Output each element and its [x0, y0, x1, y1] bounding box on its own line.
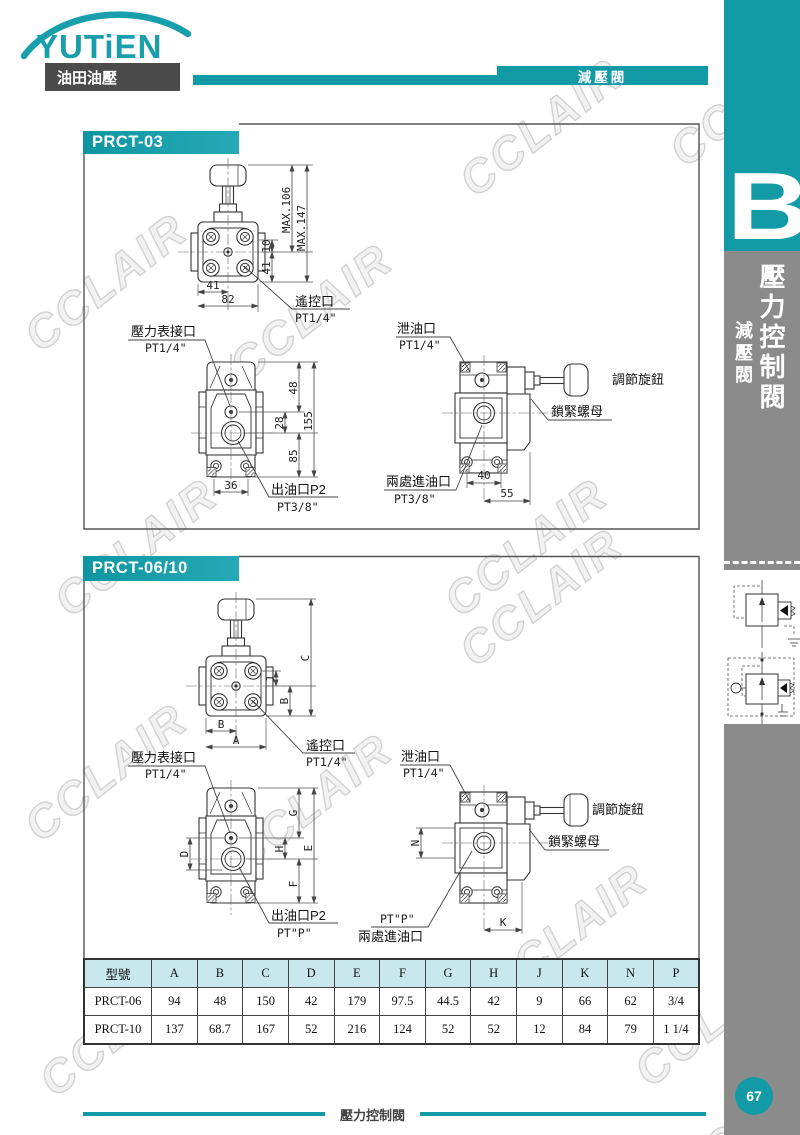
- col-header: F: [380, 959, 426, 988]
- prct0610-side-view: 泄油口 PT1/4" 調節旋鈕 鎖緊螺母 N K PT"P" 兩處進油口: [358, 749, 644, 944]
- dim-label: C: [299, 655, 312, 662]
- cell: 52: [425, 1016, 471, 1045]
- dim-label: D: [178, 851, 191, 858]
- cell: 52: [471, 1016, 517, 1045]
- table-header-row: 型號 A B C D E F G H J K N P: [84, 959, 699, 988]
- table-row: PRCT-10 137 68.7 167 52 216 124 52 52 12…: [84, 1016, 699, 1045]
- dim-label: B: [278, 697, 291, 704]
- col-header: D: [288, 959, 334, 988]
- prct03-top-view: 10 41 MAX.106 MAX.147 41 82 遙控口 PT1/4": [178, 158, 350, 325]
- port-size-label: PT1/4": [399, 338, 441, 352]
- port-label: 出油口P2: [271, 908, 326, 923]
- dim-label: F: [287, 881, 300, 888]
- port-size-label: PT"P": [380, 912, 415, 926]
- cell: 62: [608, 988, 654, 1016]
- footer-rule-left: [83, 1112, 325, 1116]
- prct03-side-view: 泄油口 PT1/4" 調節旋鈕 鎖緊螺母 兩處進油口 PT3/8" 40 55: [384, 321, 664, 506]
- cell: 68.7: [197, 1016, 243, 1045]
- dim-label: 28: [273, 416, 286, 429]
- cell: 1 1/4: [653, 1016, 699, 1045]
- dim-label: 55: [500, 487, 513, 500]
- col-header: J: [517, 959, 563, 988]
- knob-label: 調節旋鈕: [612, 372, 664, 387]
- dimension-table: 型號 A B C D E F G H J K N P PRCT-06 94 48…: [83, 958, 700, 1045]
- catalog-page: CCLAIR CCLAIR CCLAIR CCLAIR CCLAIR CCLAI…: [0, 0, 800, 1135]
- sidebar-section-letter: B: [727, 162, 800, 252]
- cell: 137: [152, 1016, 198, 1045]
- prct0610-top-view: J B C B A 遙控口 PT1/4": [186, 592, 355, 769]
- cell: 52: [288, 1016, 334, 1045]
- dim-label: N: [409, 840, 422, 847]
- dim-label: E: [302, 845, 315, 852]
- cell: 9: [517, 988, 563, 1016]
- nut-label: 鎖緊螺母: [551, 404, 603, 419]
- dim-label: 41: [260, 261, 273, 274]
- col-header: E: [334, 959, 380, 988]
- port-label: 壓力表接口: [131, 750, 196, 765]
- col-header: 型號: [84, 959, 152, 988]
- cell: 179: [334, 988, 380, 1016]
- cell: PRCT-06: [84, 988, 152, 1016]
- dim-label: 82: [221, 293, 234, 306]
- cell: 216: [334, 1016, 380, 1045]
- dim-label: 48: [287, 381, 300, 394]
- col-header: K: [562, 959, 608, 988]
- dim-label: 36: [224, 479, 237, 492]
- table-row: PRCT-06 94 48 150 42 179 97.5 44.5 42 9 …: [84, 988, 699, 1016]
- port-size-label: PT1/4": [145, 767, 187, 781]
- knob-label: 調節旋鈕: [592, 802, 644, 817]
- col-header: G: [425, 959, 471, 988]
- nut-label: 鎖緊螺母: [548, 834, 600, 849]
- section-title-prct03: PRCT-03: [83, 131, 239, 154]
- prct0610-front-view: D H G F E 壓力表接口 PT1/4" 出油口P2 PT"P": [128, 750, 338, 940]
- port-size-label: PT1/4": [403, 766, 445, 780]
- col-header: H: [471, 959, 517, 988]
- port-size-label: PT1/4": [306, 755, 348, 769]
- port-size-label: PT1/4": [295, 311, 337, 325]
- dim-label: 85: [287, 449, 300, 462]
- logo-swoosh-icon: [18, 4, 203, 66]
- port-label: 兩處進油口: [386, 474, 451, 489]
- cell: 44.5: [425, 988, 471, 1016]
- prct03-front-view: 28 48 85 155 36 壓力表接口 PT1/4" 出油口P2 PT3/8…: [128, 324, 338, 514]
- port-label: 遙控口: [295, 294, 334, 309]
- dim-label: J: [264, 676, 277, 683]
- col-header: A: [152, 959, 198, 988]
- cell: 150: [243, 988, 289, 1016]
- section-title-prct0610: PRCT-06/10: [83, 556, 239, 581]
- dim-label: MAX.106: [280, 187, 293, 233]
- col-header: P: [653, 959, 699, 988]
- cell: PRCT-10: [84, 1016, 152, 1045]
- dim-label: 40: [477, 469, 490, 482]
- cell: 79: [608, 1016, 654, 1045]
- cell: 42: [288, 988, 334, 1016]
- port-label: 壓力表接口: [131, 324, 196, 339]
- cell: 12: [517, 1016, 563, 1045]
- cell: 124: [380, 1016, 426, 1045]
- dim-label: A: [233, 734, 240, 747]
- cell: 66: [562, 988, 608, 1016]
- port-size-label: PT"P": [277, 926, 312, 940]
- dim-label: 41: [206, 279, 219, 292]
- footer-rule-right: [420, 1112, 706, 1116]
- dim-label: B: [218, 718, 225, 731]
- cell: 94: [152, 988, 198, 1016]
- col-header: B: [197, 959, 243, 988]
- port-label: 兩處進油口: [358, 929, 423, 944]
- col-header: C: [243, 959, 289, 988]
- port-size-label: PT3/8": [394, 492, 436, 506]
- cell: 84: [562, 1016, 608, 1045]
- port-label: 泄油口: [397, 321, 436, 336]
- cell: 3/4: [653, 988, 699, 1016]
- cell: 167: [243, 1016, 289, 1045]
- dim-label: H: [273, 846, 286, 853]
- footer-label: 壓力控制閥: [325, 1105, 420, 1124]
- cell: 97.5: [380, 988, 426, 1016]
- dim-label: 10: [260, 239, 273, 252]
- port-size-label: PT3/8": [277, 500, 319, 514]
- port-label: 出油口P2: [271, 482, 326, 497]
- port-size-label: PT1/4": [145, 341, 187, 355]
- cell: 48: [197, 988, 243, 1016]
- dim-label: MAX.147: [295, 205, 308, 251]
- port-label: 泄油口: [401, 749, 440, 764]
- cell: 42: [471, 988, 517, 1016]
- dim-label: G: [287, 810, 300, 817]
- col-header: N: [608, 959, 654, 988]
- dim-label: 155: [302, 411, 315, 431]
- dim-label: K: [500, 916, 507, 929]
- port-label: 遙控口: [306, 738, 345, 753]
